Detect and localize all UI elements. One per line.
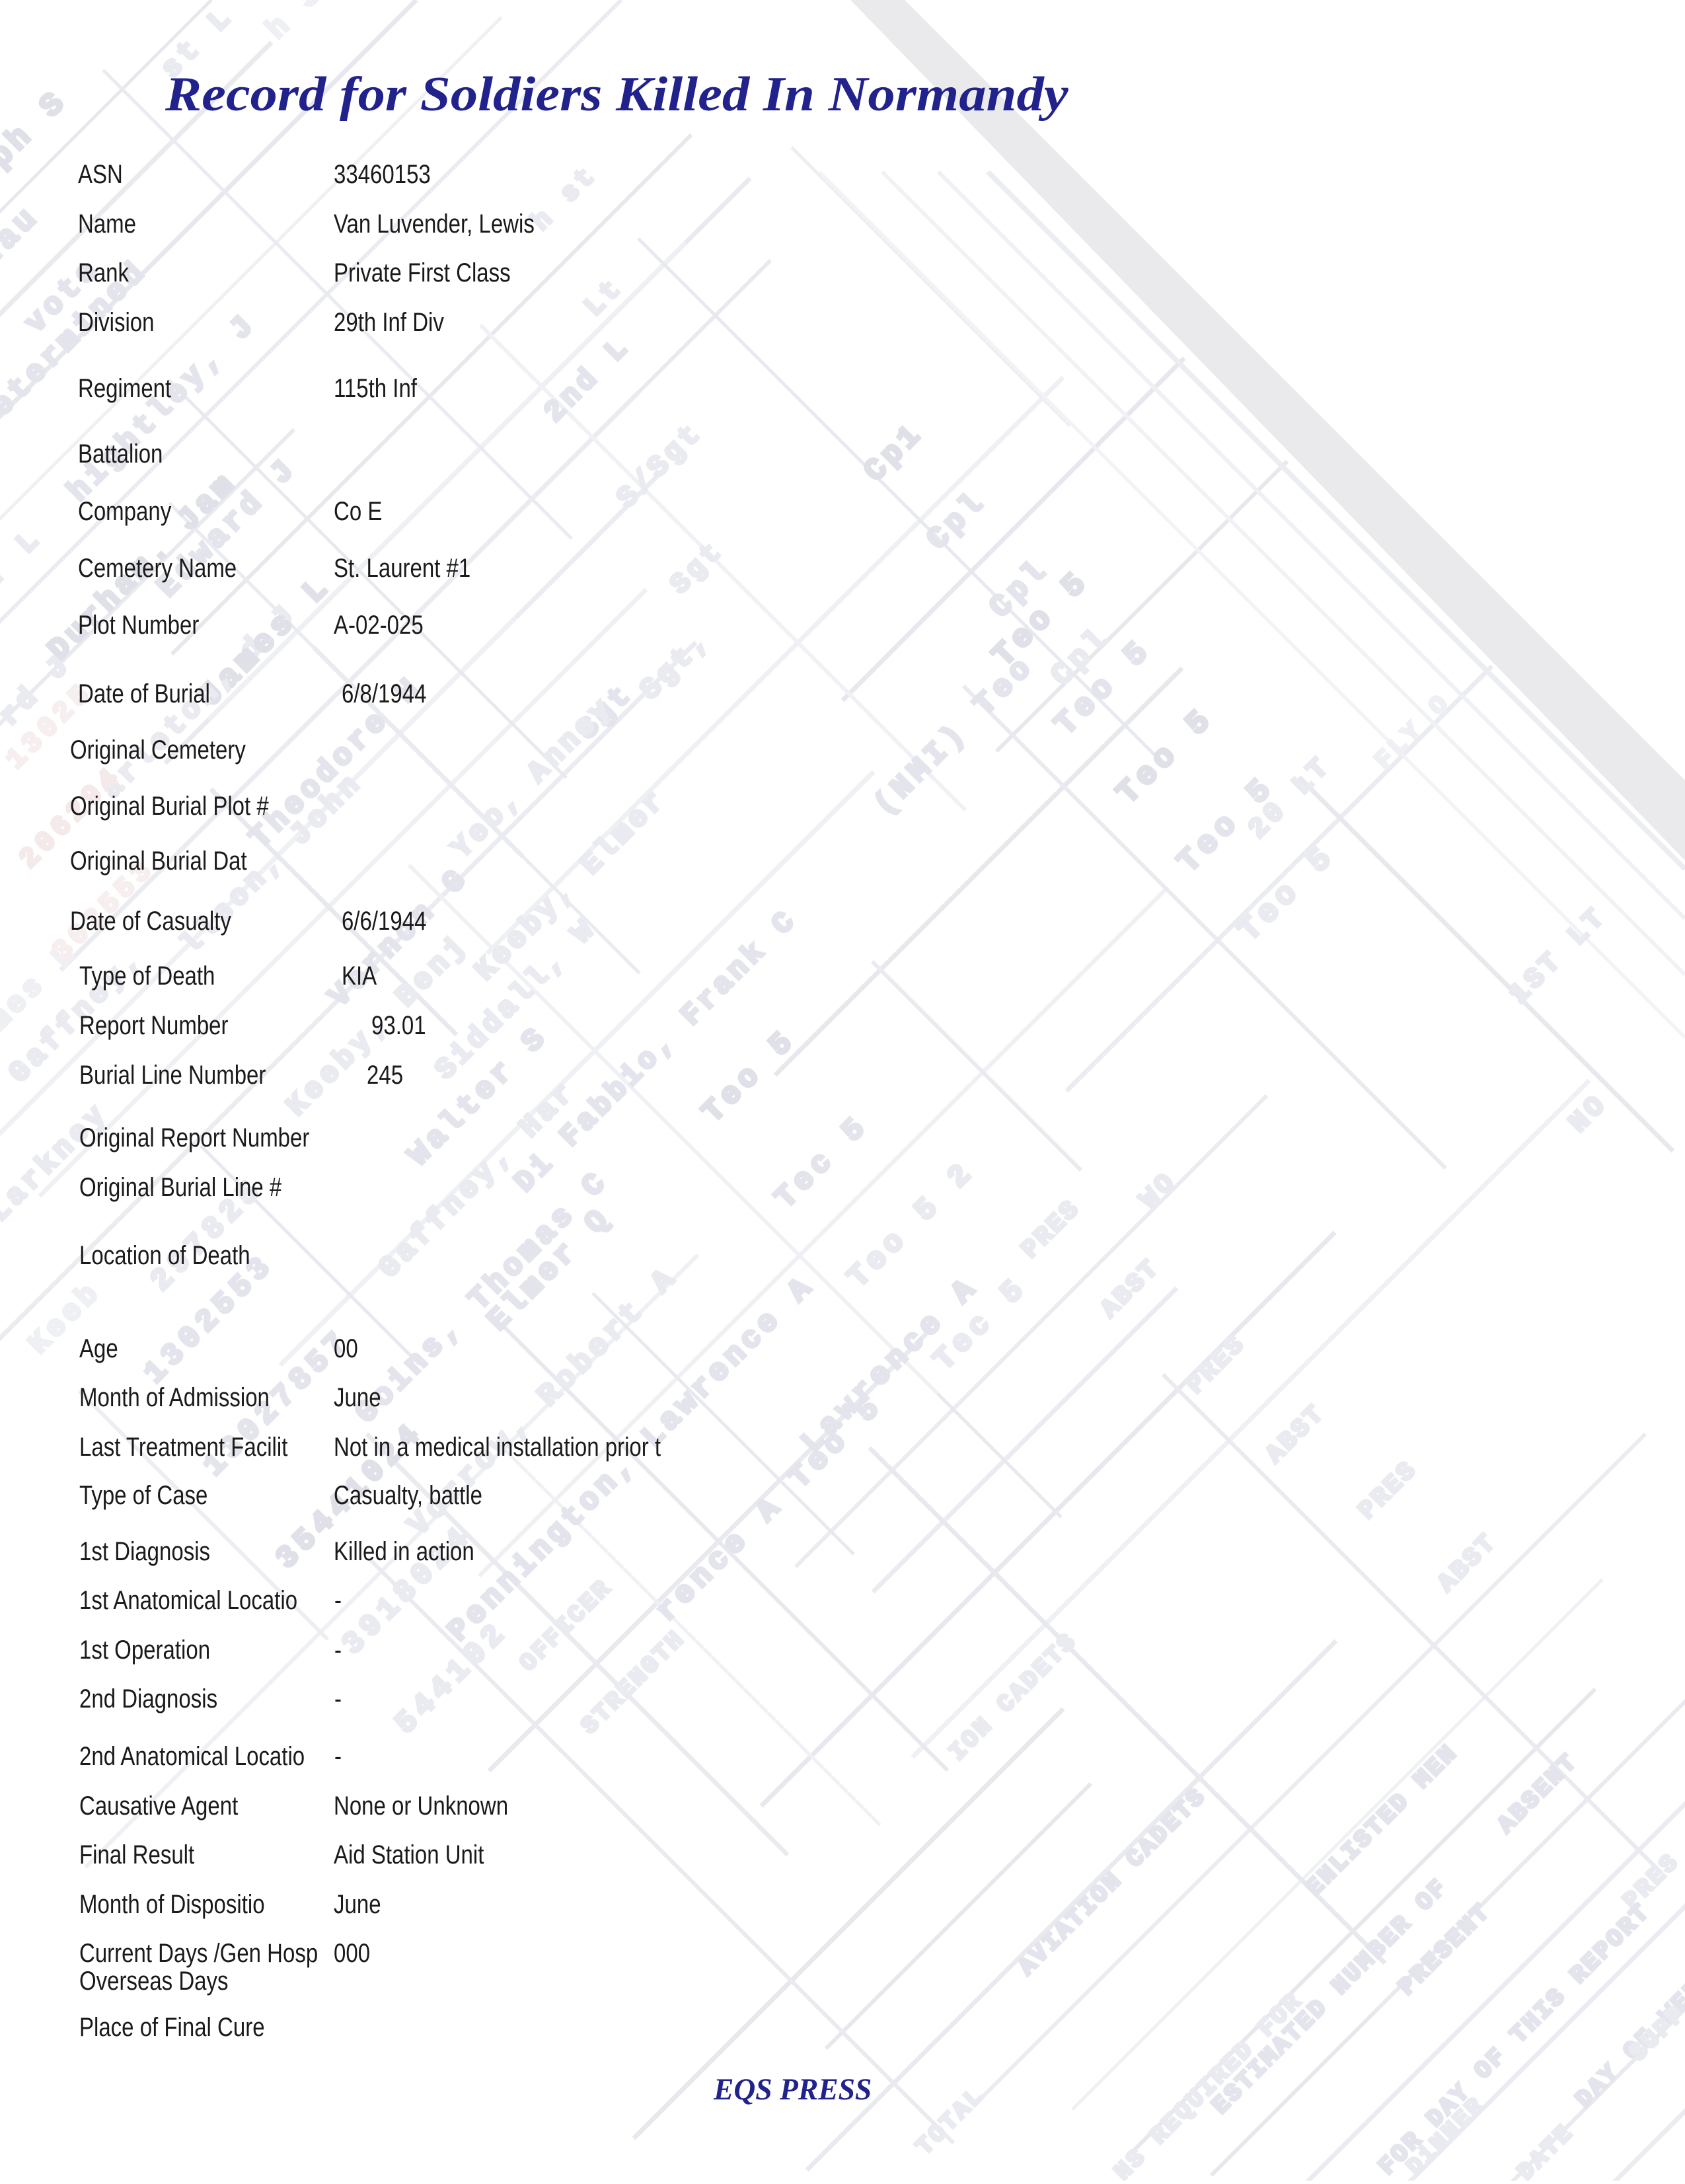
svg-text:Date of Casualty: Date of Casualty [70,906,231,936]
svg-text:A-02-025: A-02-025 [334,610,424,640]
svg-text:245: 245 [367,1060,403,1090]
svg-text:Plot Number: Plot Number [78,610,199,640]
svg-text:Original Report Number: Original Report Number [79,1123,309,1152]
svg-text:Van Luvender, Lewis: Van Luvender, Lewis [334,209,535,239]
svg-text:Name: Name [78,209,136,239]
svg-text:St. Laurent #1: St. Laurent #1 [334,553,470,583]
svg-text:29th Inf Div: 29th Inf Div [334,307,444,337]
svg-text:Rank: Rank [78,258,130,287]
svg-text:Age: Age [79,1334,118,1363]
svg-text:-: - [334,1635,342,1665]
svg-text:June: June [334,1889,381,1919]
svg-text:ASN: ASN [78,159,123,189]
svg-text:Type of Case: Type of Case [79,1480,207,1510]
svg-text:Date of Burial: Date of Burial [78,679,210,708]
svg-text:Not in a medical installation: Not in a medical installation prior t [334,1432,661,1462]
svg-text:Last Treatment Facilit: Last Treatment Facilit [79,1432,287,1462]
svg-text:33460153: 33460153 [334,159,431,189]
svg-text:Burial Line Number: Burial Line Number [79,1060,266,1090]
svg-text:-: - [334,1741,342,1771]
svg-text:-: - [334,1585,342,1615]
svg-text:Battalion: Battalion [78,439,163,469]
svg-text:Location of Death: Location of Death [79,1240,250,1270]
svg-text:June: June [334,1382,381,1412]
svg-text:Regiment: Regiment [78,373,171,403]
svg-text:Original Burial Plot #: Original Burial Plot # [70,791,269,821]
svg-text:Overseas Days: Overseas Days [79,1966,229,1996]
svg-text:Month of Dispositio: Month of Dispositio [79,1889,265,1919]
svg-text:EQS PRESS: EQS PRESS [713,2072,872,2107]
svg-text:Co E: Co E [334,496,382,526]
svg-text:Final Result: Final Result [79,1840,194,1869]
svg-text:2nd Anatomical Locatio: 2nd Anatomical Locatio [79,1741,305,1771]
svg-text:Month of Admission: Month of Admission [79,1382,270,1412]
svg-text:1st Operation: 1st Operation [79,1635,210,1665]
svg-text:Division: Division [78,307,155,337]
svg-text:Causative Agent: Causative Agent [79,1791,238,1821]
svg-text:6/6/1944: 6/6/1944 [342,906,426,936]
svg-text:Original Burial Line #: Original Burial Line # [79,1172,282,1202]
svg-text:Record for Soldiers Killed In: Record for Soldiers Killed In Normandy [165,67,1069,122]
svg-text:KIA: KIA [342,961,377,991]
svg-text:115th Inf: 115th Inf [334,373,418,403]
svg-text:-: - [334,1684,342,1713]
svg-text:93.01: 93.01 [371,1010,426,1040]
svg-text:Original Burial Dat: Original Burial Dat [70,846,247,876]
svg-text:2nd Diagnosis: 2nd Diagnosis [79,1684,217,1713]
svg-text:Company: Company [78,496,172,526]
svg-text:Killed in action: Killed in action [334,1536,474,1566]
svg-text:Private First Class: Private First Class [334,258,511,287]
svg-text:Original Cemetery: Original Cemetery [70,735,246,765]
svg-text:1st Anatomical Locatio: 1st Anatomical Locatio [79,1585,297,1615]
svg-text:Type of Death: Type of Death [79,961,215,991]
svg-text:Current Days /Gen Hosp: Current Days /Gen Hosp [79,1938,318,1968]
svg-text:Cemetery Name: Cemetery Name [78,553,237,583]
svg-text:None or Unknown: None or Unknown [334,1791,508,1821]
svg-text:Place of Final Cure: Place of Final Cure [79,2012,265,2042]
svg-text:000: 000 [334,1938,370,1968]
svg-text:Aid Station Unit: Aid Station Unit [334,1840,484,1869]
svg-text:6/8/1944: 6/8/1944 [342,679,426,708]
svg-text:00: 00 [334,1334,358,1363]
svg-text:Report Number: Report Number [79,1010,229,1040]
svg-text:1st Diagnosis: 1st Diagnosis [79,1536,210,1566]
svg-text:Casualty, battle: Casualty, battle [334,1480,482,1510]
